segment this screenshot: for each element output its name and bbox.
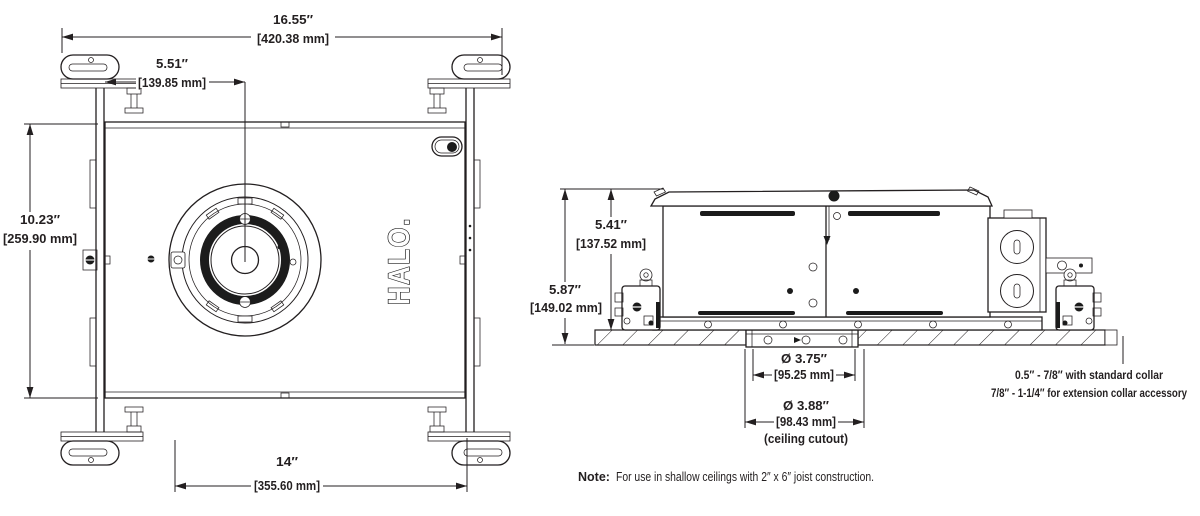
dim-overall-height-mm: [149.02 mm] xyxy=(530,300,602,315)
dim-overall-height: 5.87″ [149.02 mm] xyxy=(528,189,604,345)
trim-collar xyxy=(746,330,858,347)
dim-cutout-caption: (ceiling cutout) xyxy=(764,431,848,446)
technical-drawing-page: HALO. 16.55″ [420.38 mm] 5.51″ [139.85 m… xyxy=(0,0,1200,516)
dim-pan-width-in: 14″ xyxy=(276,454,298,469)
hanger-bracket-left xyxy=(615,269,660,330)
footnote-text: For use in shallow ceilings with 2″ x 6″… xyxy=(616,470,874,484)
dim-overall-height-in: 5.87″ xyxy=(549,282,581,297)
dim-housing-height-in: 5.41″ xyxy=(595,217,627,232)
dim-aperture-mm: [95.25 mm] xyxy=(774,367,834,382)
frame-rail xyxy=(653,317,1042,330)
mounting-foot-top-right xyxy=(428,55,510,113)
dim-aperture-in: Ø 3.75″ xyxy=(781,351,827,366)
dim-center-offset-mm: [139.85 mm] xyxy=(138,75,206,90)
footnote-label: Note: xyxy=(578,470,610,484)
mounting-foot-bottom-left xyxy=(61,407,143,465)
side-view: 5.41″ [137.52 mm] 5.87″ [149.02 mm] Ø 3.… xyxy=(528,187,1187,446)
dim-pan-width-mm: [355.60 mm] xyxy=(254,478,320,493)
collar-note: 0.5″ - 7/8″ with standard collar 7/8″ - … xyxy=(991,336,1187,400)
housing-box xyxy=(651,187,992,317)
halo-housing-drawing: HALO. 16.55″ [420.38 mm] 5.51″ [139.85 m… xyxy=(0,0,1200,516)
dim-depth: 10.23″ [259.90 mm] xyxy=(1,124,98,398)
dim-aperture: Ø 3.75″ [95.25 mm] xyxy=(753,349,855,382)
hanger-bracket-right xyxy=(1056,269,1101,330)
dim-cutout-mm: [98.43 mm] xyxy=(776,414,836,429)
footnote: Note: For use in shallow ceilings with 2… xyxy=(578,470,874,484)
dim-cutout-in: Ø 3.88″ xyxy=(783,398,829,413)
dim-housing-height-mm: [137.52 mm] xyxy=(576,236,646,251)
collar-note-line2: 7/8″ - 1-1/4″ for extension collar acces… xyxy=(991,386,1187,400)
plan-view: HALO. 16.55″ [420.38 mm] 5.51″ [139.85 m… xyxy=(1,12,510,494)
dim-center-offset-in: 5.51″ xyxy=(156,56,188,71)
dim-overall-width-in: 16.55″ xyxy=(273,12,313,27)
knockout-slot xyxy=(432,137,462,156)
halo-logo: HALO. xyxy=(383,217,416,305)
mounting-foot-top-left xyxy=(61,55,143,113)
collar-note-line1: 0.5″ - 7/8″ with standard collar xyxy=(1015,368,1163,382)
dim-depth-mm: [259.90 mm] xyxy=(3,231,77,246)
dim-overall-width: 16.55″ [420.38 mm] xyxy=(62,12,502,75)
mounting-foot-bottom-right xyxy=(428,407,510,465)
dim-overall-width-mm: [420.38 mm] xyxy=(257,31,329,46)
dim-pan-width: 14″ [355.60 mm] xyxy=(175,438,467,494)
dim-depth-in: 10.23″ xyxy=(20,212,60,227)
